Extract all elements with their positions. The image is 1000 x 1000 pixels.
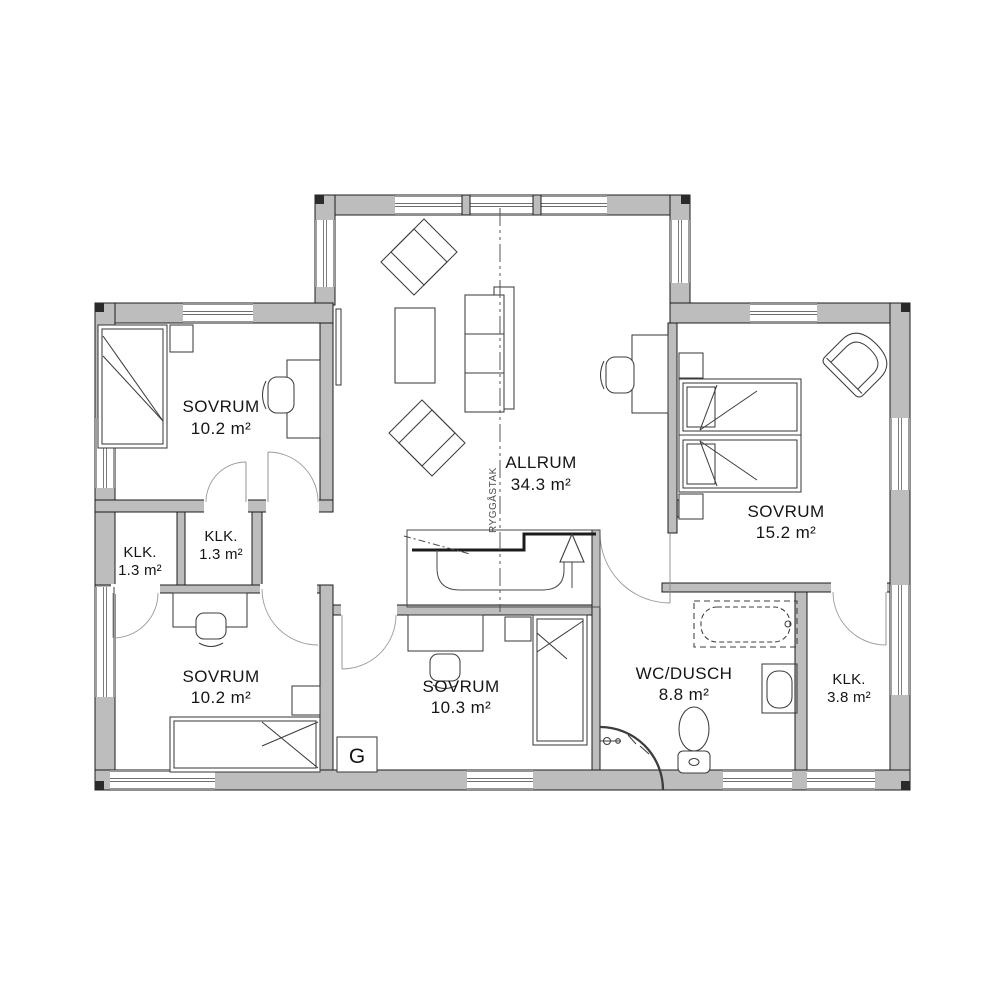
chair-allrum <box>601 357 635 393</box>
label-sovrum-south: SOVRUM <box>422 677 499 696</box>
shower-mixer <box>600 738 621 745</box>
bed-nw <box>98 325 167 448</box>
desk-allrum <box>632 335 668 413</box>
door-klk-west <box>113 593 158 638</box>
area-klk-mid: 1.3 m² <box>199 546 243 563</box>
area-wc-dusch: 8.8 m² <box>659 685 710 704</box>
area-allrum: 34.3 m² <box>511 475 571 494</box>
window-south-1 <box>110 770 215 790</box>
window-bay-left <box>315 220 335 287</box>
corner-armchair <box>821 325 895 399</box>
label-sovrum-sw: SOVRUM <box>182 667 259 686</box>
window-south-2 <box>467 770 533 790</box>
window-bay-band <box>395 195 607 215</box>
label-klk-southeast: KLK. <box>832 671 865 688</box>
door-klk-southeast <box>833 592 886 645</box>
washbasin <box>762 664 797 713</box>
area-sovrum-nw: 10.2 m² <box>191 419 251 438</box>
stair-up-arrow <box>560 534 584 588</box>
floor-plan-page: RYGGÅSTAK SOVRUM 10.2 m² KLK. 1.3 m² KLK… <box>0 0 1000 1000</box>
window-north-west-wing <box>183 303 253 323</box>
armchair-2 <box>389 400 465 476</box>
nightstand-e1 <box>679 353 703 378</box>
nightstand-south <box>505 617 531 641</box>
label-wc-dusch: WC/DUSCH <box>636 664 733 683</box>
armchair-1 <box>381 219 457 295</box>
window-south-4 <box>807 770 875 790</box>
window-east-2 <box>890 585 910 695</box>
staircase <box>404 530 600 607</box>
label-sovrum-east: SOVRUM <box>747 502 824 521</box>
window-north-east-wing <box>750 303 817 323</box>
coffee-table <box>395 308 435 383</box>
bed-sw <box>170 717 320 772</box>
door-sovrum-east <box>600 533 670 603</box>
window-bay-right <box>670 220 690 283</box>
door-sovrum-sw <box>262 589 318 645</box>
chair-nw <box>263 377 295 413</box>
tv <box>336 309 341 385</box>
sofa <box>465 287 514 412</box>
wardrobe-label: G <box>349 745 365 768</box>
label-sovrum-nw: SOVRUM <box>182 397 259 416</box>
ridge-line-label: RYGGÅSTAK <box>486 467 499 533</box>
nightstand-sw <box>292 686 320 715</box>
label-klk-mid: KLK. <box>204 528 237 545</box>
bathtub-dashed <box>694 601 797 647</box>
area-sovrum-sw: 10.2 m² <box>191 688 251 707</box>
desk-south <box>408 615 483 651</box>
nightstand-nw <box>170 325 193 352</box>
area-klk-west: 1.3 m² <box>118 562 162 579</box>
chair-sw <box>196 613 226 647</box>
door-sovrum-nw <box>268 452 318 502</box>
label-klk-west: KLK. <box>123 544 156 561</box>
nightstand-e2 <box>679 494 703 519</box>
area-sovrum-east: 15.2 m² <box>756 523 816 542</box>
door-klk-mid <box>206 462 246 502</box>
area-sovrum-south: 10.3 m² <box>431 698 491 717</box>
window-west-2 <box>95 587 115 697</box>
floor-plan-drawing: RYGGÅSTAK SOVRUM 10.2 m² KLK. 1.3 m² KLK… <box>0 0 1000 1000</box>
toilet <box>678 707 710 773</box>
door-sovrum-south <box>342 615 396 669</box>
window-east-1 <box>890 418 910 490</box>
double-bed-east <box>679 379 801 492</box>
window-south-3 <box>723 770 792 790</box>
area-klk-southeast: 3.8 m² <box>827 689 871 706</box>
bed-south <box>533 615 587 745</box>
label-allrum: ALLRUM <box>505 453 576 472</box>
